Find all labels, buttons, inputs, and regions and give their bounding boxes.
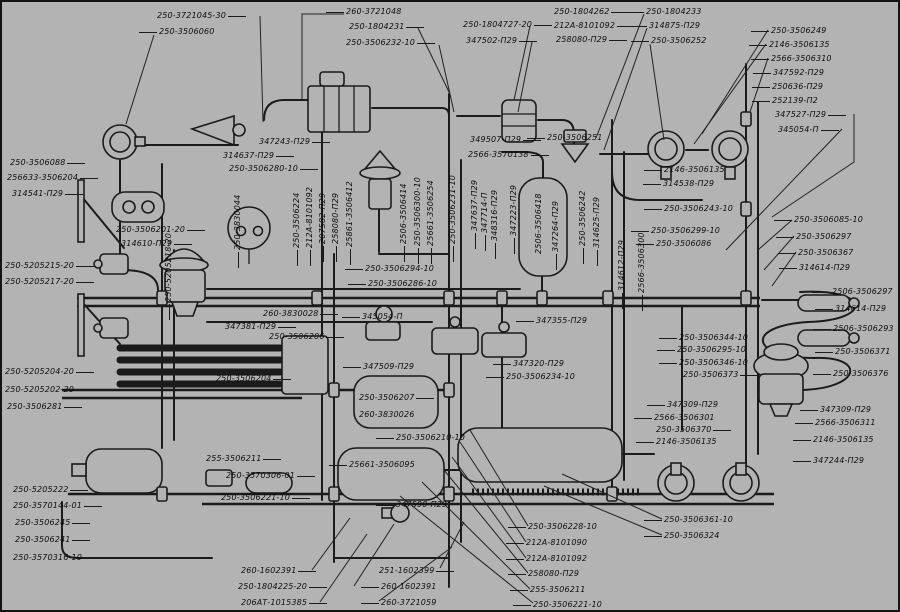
part-label: 250-3506346-10 [679, 358, 748, 367]
part-label: 314614-П29 [799, 263, 850, 272]
part-label: 250-3506286-10 [368, 279, 437, 288]
part-label: 347244-П29 [813, 456, 864, 465]
part-label: 260-3721059 [381, 598, 436, 607]
part-label: 250-3506370 [656, 425, 711, 434]
part-label: 250-3506344-10 [679, 333, 748, 342]
part-label: 250-3506249 [771, 26, 826, 35]
part-label: 250-3506361-10 [664, 515, 733, 524]
part-label: 314541-П29 [12, 189, 63, 198]
part-label: 347502-П29 [466, 36, 517, 45]
part-label: 255-3506211 [530, 585, 585, 594]
part-label: 25661-3506095 [349, 460, 415, 469]
part-label: 2506-3506418 [534, 193, 543, 254]
part-label: 2506-3506293 [833, 324, 894, 333]
part-label: 250-3506295-10 [677, 345, 746, 354]
part-label: 250-3506206 [269, 332, 324, 341]
part-label: 2566-3506310 [771, 54, 832, 63]
part-label: 250-3506088 [10, 158, 65, 167]
part-label: 25661-3506254 [426, 180, 435, 246]
part-label: 256633-3506204 [7, 173, 78, 182]
part-label: 250-3506231-10 [448, 175, 457, 244]
part-label: 347381-П29 [225, 322, 276, 331]
part-label: 314637-П29 [223, 151, 274, 160]
part-label: 250-3506251 [547, 133, 602, 142]
part-label: 2506-3506297 [832, 287, 893, 296]
part-label: 250-3570306-01 [226, 471, 295, 480]
part-label: 2146-3506135 [664, 165, 725, 174]
part-label: 212А-8101092 [554, 21, 615, 30]
part-label: 2566-3506311 [815, 418, 876, 427]
part-label: 206АТ-1015385 [241, 598, 307, 607]
part-label: 250-5205202-20 [5, 385, 74, 394]
part-label: 212А-8101090 [526, 538, 587, 547]
part-label: 250636-П29 [772, 82, 823, 91]
part-label: 347309-П29 [667, 400, 718, 409]
part-label: 345054-П [362, 312, 403, 321]
part-label: 2146-3506135 [813, 435, 874, 444]
part-label: 251-1602399 [379, 566, 434, 575]
part-label: 250-3506085-10 [794, 215, 863, 224]
part-label: 250-5205215-20 [5, 261, 74, 270]
part-label: 347527-П29 [775, 110, 826, 119]
part-label: 260-3830028 [263, 309, 318, 318]
part-label: 250-3506367 [798, 248, 853, 257]
part-label: 258080-П29 [528, 569, 579, 578]
part-label: 347355-П29 [536, 316, 587, 325]
part-label: 260-3830026 [359, 410, 414, 419]
part-label: 250-3721045-30 [157, 11, 226, 20]
part-label: 250-3506232-10 [346, 38, 415, 47]
part-label: 260-1602391 [241, 566, 296, 575]
part-label: 314875-П29 [649, 21, 700, 30]
part-label: 250-5205218-20 [164, 233, 173, 302]
part-label: 2146-3506135 [656, 437, 717, 446]
part-label: 250-3506300-10 [413, 177, 422, 246]
part-label: 212А-8101092 [526, 554, 587, 563]
part-label: 25861-3506412 [345, 181, 354, 247]
part-label: 2566-3570138 [468, 150, 529, 159]
part-label: 347243-П29 [259, 137, 310, 146]
part-label: 250-3506252 [651, 36, 706, 45]
part-label: 207582-П29 [318, 193, 327, 244]
part-label: 347320-П29 [513, 359, 564, 368]
part-label: 314538-П29 [663, 179, 714, 188]
part-label: 345054-П [778, 125, 819, 134]
part-label: 250-3506281 [7, 402, 62, 411]
part-label: 250-3506228-10 [528, 522, 597, 531]
part-label: 250-3506221-10 [221, 493, 290, 502]
part-label: 252139-П2 [772, 96, 818, 105]
part-label: 250-3506376 [833, 369, 888, 378]
part-label: 250-3506060 [159, 27, 214, 36]
part-label: 250-3506245 [15, 518, 70, 527]
part-label: 2506-3506414 [399, 183, 408, 244]
part-label: 250-3830044 [233, 195, 242, 250]
part-label: 250-3506207 [359, 393, 414, 402]
part-label: 250-1804262 [554, 7, 609, 16]
part-label: 347223-П29 [509, 185, 518, 236]
part-label: 258080-П29 [331, 193, 340, 244]
part-label: 250-5205217-20 [5, 277, 74, 286]
part-label: 258080-П29 [556, 35, 607, 44]
part-label: 314612-П29 [617, 240, 626, 291]
schematic-page: 250-3721045-30250-3506060260-3721048250-… [0, 0, 900, 612]
part-label: 347309-П29 [820, 405, 871, 414]
part-label: 250-3506234-10 [506, 372, 575, 381]
part-label: 250-3506210-10 [396, 433, 465, 442]
part-label: 347590-П29 [396, 500, 447, 509]
part-label: 250-3506243-10 [664, 204, 733, 213]
part-label: 250-3506241 [15, 535, 70, 544]
part-label: 250-3570316-10 [13, 553, 82, 562]
part-label: 2146-3506135 [769, 40, 830, 49]
part-label: 250-3506201-20 [116, 225, 185, 234]
part-label: 250-3506299-10 [651, 226, 720, 235]
part-label: 250-1804233 [646, 7, 701, 16]
part-label: 212А-8101092 [305, 187, 314, 248]
part-label: 250-3506204 [216, 374, 271, 383]
part-label: 347264-П29 [551, 201, 560, 252]
part-label: 250-3506086 [656, 239, 711, 248]
part-label: 314614-П29 [835, 304, 886, 313]
part-label: 250-3506280-10 [229, 164, 298, 173]
labels-layer: 250-3721045-30250-3506060260-3721048250-… [2, 2, 898, 610]
part-label: 250-3506221-10 [533, 600, 602, 609]
part-label: 250-3506224 [292, 193, 301, 248]
part-label: 250-5205222 [13, 485, 68, 494]
part-label: 250-3506297 [796, 232, 851, 241]
part-label: 250-5205204-20 [5, 367, 74, 376]
part-label: 349507-П29 [470, 135, 521, 144]
part-label: 250-3570144-01 [13, 501, 82, 510]
part-label: 250-1804225-20 [238, 582, 307, 591]
part-label: 250-3506371 [835, 347, 890, 356]
part-label: 250-3506373 [683, 370, 738, 379]
part-label: 2566-3506301 [654, 413, 715, 422]
part-label: 250-1804231 [349, 22, 404, 31]
part-label: 347509-П29 [363, 362, 414, 371]
part-label: 250-1804727-20 [463, 20, 532, 29]
part-label: 255-3506211 [206, 454, 261, 463]
part-label: 260-3721048 [346, 7, 401, 16]
part-label: 2566-3506300 [637, 232, 646, 293]
part-label: 314625-П29 [592, 197, 601, 248]
part-label: 348316-П29 [490, 190, 499, 241]
part-label: 347637-П29 [470, 180, 479, 231]
part-label: 250-3506242 [578, 191, 587, 246]
part-label: 347592-П29 [773, 68, 824, 77]
part-label: 347714-П [480, 192, 489, 233]
part-label: 250-3506324 [664, 531, 719, 540]
part-label: 260-1602391 [381, 582, 436, 591]
part-label: 250-3506294-10 [365, 264, 434, 273]
